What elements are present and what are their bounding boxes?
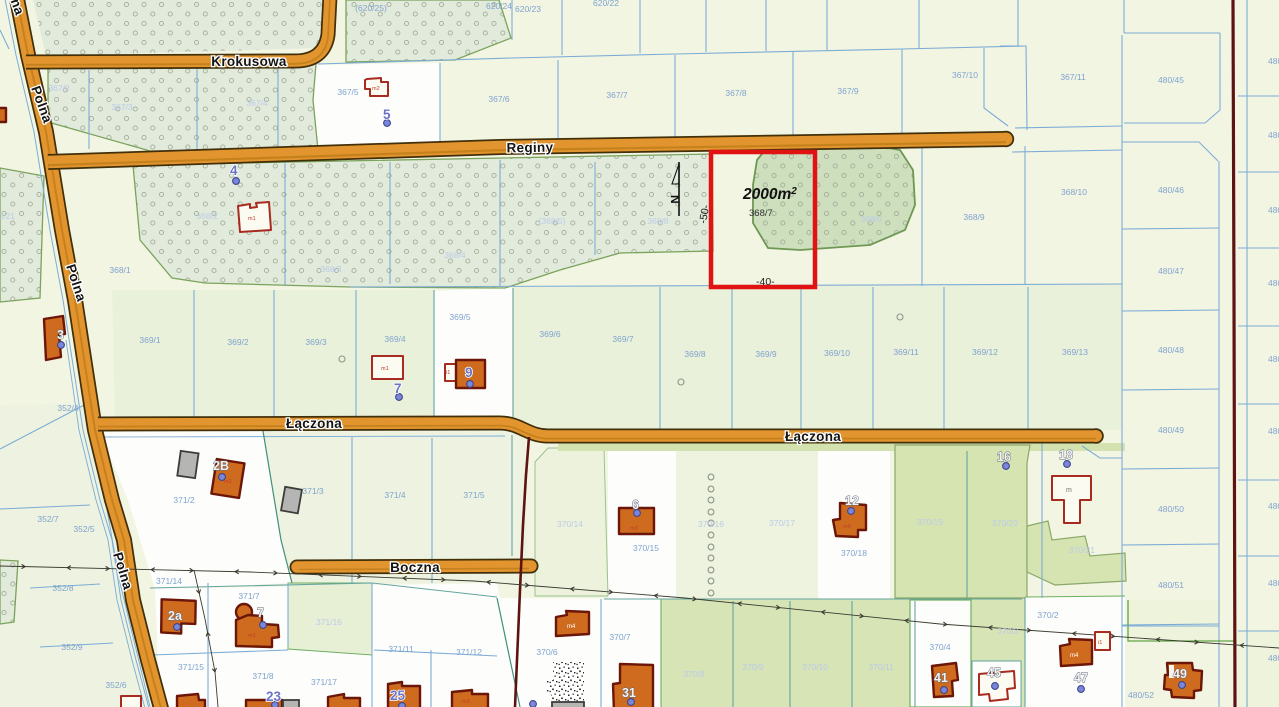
svg-text:Reginy: Reginy — [506, 140, 553, 156]
svg-text:m3: m3 — [462, 699, 470, 705]
svg-text:371/16: 371/16 — [316, 617, 342, 627]
svg-text:367/7: 367/7 — [606, 90, 628, 100]
svg-text:369/13: 369/13 — [1062, 347, 1088, 357]
svg-text:352/5: 352/5 — [73, 524, 95, 534]
svg-text:370/4: 370/4 — [929, 642, 951, 652]
svg-text:480/50: 480/50 — [1158, 504, 1184, 514]
svg-text:Łączona: Łączona — [785, 429, 841, 444]
svg-text:620/23: 620/23 — [515, 4, 541, 14]
svg-text:370/16: 370/16 — [698, 519, 724, 529]
svg-text:6: 6 — [632, 498, 639, 512]
svg-text:371/12: 371/12 — [456, 647, 482, 657]
svg-text:367/11: 367/11 — [1060, 72, 1086, 82]
svg-text:2a: 2a — [168, 609, 183, 623]
svg-text:367/5: 367/5 — [337, 87, 359, 97]
svg-text:371/11: 371/11 — [388, 644, 414, 654]
svg-text:m2: m2 — [224, 479, 232, 485]
svg-text:480/45: 480/45 — [1158, 75, 1184, 85]
svg-text:367/2: 367/2 — [48, 83, 70, 93]
svg-text:370/15: 370/15 — [633, 543, 659, 553]
svg-text:369/11: 369/11 — [893, 347, 919, 357]
svg-text:620/21: 620/21 — [0, 211, 15, 221]
svg-text:370/9: 370/9 — [742, 662, 764, 672]
svg-text:m: m — [1066, 487, 1072, 494]
svg-text:Łączona: Łączona — [286, 416, 342, 431]
svg-text:m4: m4 — [567, 624, 576, 630]
svg-text:369/12: 369/12 — [972, 347, 998, 357]
svg-text:367/6: 367/6 — [488, 94, 510, 104]
svg-text:370/3: 370/3 — [997, 626, 1019, 636]
svg-text:370/19: 370/19 — [917, 517, 943, 527]
svg-text:45: 45 — [987, 666, 1001, 680]
svg-text:370/20: 370/20 — [992, 518, 1018, 528]
svg-text:352/9: 352/9 — [61, 642, 83, 652]
svg-text:480/51: 480/51 — [1158, 580, 1184, 590]
svg-text:369/1: 369/1 — [139, 335, 161, 345]
svg-text:368/1: 368/1 — [109, 265, 131, 275]
svg-text:2B: 2B — [213, 459, 229, 473]
svg-text:371/2: 371/2 — [173, 495, 195, 505]
svg-text:i1: i1 — [446, 370, 450, 376]
svg-text:480/4: 480/4 — [1268, 653, 1279, 663]
svg-text:m1: m1 — [248, 216, 256, 222]
svg-text:370/2: 370/2 — [1037, 610, 1059, 620]
svg-text:480/52: 480/52 — [1128, 690, 1154, 700]
svg-text:369/5: 369/5 — [449, 312, 471, 322]
svg-text:369/6: 369/6 — [539, 329, 561, 339]
svg-text:480/4: 480/4 — [1268, 354, 1279, 364]
svg-text:2000m2: 2000m2 — [742, 186, 797, 203]
svg-text:352/4: 352/4 — [57, 403, 79, 413]
svg-text:369/9: 369/9 — [755, 349, 777, 359]
svg-text:352/8: 352/8 — [52, 583, 74, 593]
svg-text:370/21: 370/21 — [1069, 545, 1095, 555]
svg-text:371/3: 371/3 — [302, 486, 324, 496]
svg-text:m1: m1 — [248, 633, 256, 639]
svg-text:371/15: 371/15 — [178, 662, 204, 672]
svg-text:5: 5 — [383, 107, 391, 122]
svg-text:N: N — [668, 195, 682, 204]
svg-text:23: 23 — [266, 689, 282, 704]
svg-text:m1: m1 — [381, 366, 389, 372]
svg-text:370/8: 370/8 — [683, 669, 705, 679]
svg-text:369/7: 369/7 — [612, 334, 634, 344]
svg-text:369/10: 369/10 — [824, 348, 850, 358]
svg-text:49: 49 — [1173, 667, 1187, 681]
svg-text:369/8: 369/8 — [684, 349, 706, 359]
svg-text:368/7: 368/7 — [749, 208, 773, 219]
svg-text:9: 9 — [465, 365, 473, 380]
svg-text:47: 47 — [1074, 671, 1088, 685]
svg-text:368/6: 368/6 — [860, 214, 882, 224]
svg-text:371/4: 371/4 — [384, 490, 406, 500]
svg-text:371/14: 371/14 — [156, 576, 182, 586]
svg-text:367/3: 367/3 — [111, 102, 133, 112]
svg-text:m3: m3 — [630, 526, 638, 532]
svg-text:i1: i1 — [1098, 640, 1102, 646]
svg-text:3: 3 — [57, 328, 64, 342]
svg-text:368/10: 368/10 — [1061, 187, 1087, 197]
svg-text:371/7: 371/7 — [238, 591, 260, 601]
svg-text:480/4: 480/4 — [1268, 426, 1279, 436]
svg-text:7: 7 — [257, 606, 264, 620]
svg-text:12: 12 — [845, 494, 859, 508]
svg-text:480/46: 480/46 — [1158, 185, 1184, 195]
svg-text:25: 25 — [390, 688, 406, 703]
svg-text:370/11: 370/11 — [868, 662, 894, 672]
svg-text:m4: m4 — [1070, 653, 1079, 659]
svg-text:620/22: 620/22 — [593, 0, 619, 8]
svg-text:41: 41 — [934, 671, 948, 685]
svg-text:352/7: 352/7 — [37, 514, 59, 524]
svg-text:368/8: 368/8 — [647, 216, 669, 226]
svg-text:368/9: 368/9 — [963, 212, 985, 222]
svg-text:16: 16 — [997, 450, 1011, 464]
svg-text:4: 4 — [230, 163, 238, 178]
svg-text:480/4: 480/4 — [1268, 578, 1279, 588]
svg-text:480/4: 480/4 — [1268, 278, 1279, 288]
svg-text:480/4: 480/4 — [1268, 205, 1279, 215]
svg-text:368/3: 368/3 — [320, 264, 342, 274]
svg-text:370/18: 370/18 — [841, 548, 867, 558]
svg-text:371/8: 371/8 — [252, 671, 274, 681]
svg-text:370/10: 370/10 — [802, 662, 828, 672]
svg-text:369/2: 369/2 — [227, 337, 249, 347]
svg-text:371/17: 371/17 — [311, 677, 337, 687]
svg-text:368/2: 368/2 — [196, 211, 218, 221]
svg-text:480/4: 480/4 — [1268, 130, 1279, 140]
svg-text:7: 7 — [394, 381, 402, 396]
svg-text:18: 18 — [1059, 448, 1073, 462]
svg-text:480/49: 480/49 — [1158, 425, 1184, 435]
svg-text:620/24: 620/24 — [486, 1, 512, 11]
svg-text:369/4: 369/4 — [384, 334, 406, 344]
svg-text:-40-: -40- — [756, 276, 775, 288]
svg-text:m5: m5 — [843, 524, 851, 530]
svg-text:370/17: 370/17 — [769, 518, 795, 528]
svg-text:370/14: 370/14 — [557, 519, 583, 529]
svg-text:(368/5): (368/5) — [539, 216, 566, 226]
svg-text:m2: m2 — [372, 86, 380, 92]
svg-text:370/7: 370/7 — [609, 632, 631, 642]
svg-text:Boczna: Boczna — [390, 560, 440, 575]
svg-text:367/8: 367/8 — [725, 88, 747, 98]
svg-text:367/4: 367/4 — [246, 98, 268, 108]
svg-text:352/6: 352/6 — [105, 680, 127, 690]
svg-text:369/3: 369/3 — [305, 337, 327, 347]
svg-text:480/4: 480/4 — [1268, 56, 1279, 66]
svg-text:Krokusowa: Krokusowa — [211, 54, 287, 69]
svg-text:371/5: 371/5 — [463, 490, 485, 500]
svg-text:480/47: 480/47 — [1158, 266, 1184, 276]
svg-text:367/10: 367/10 — [952, 70, 978, 80]
svg-text:370/6: 370/6 — [536, 647, 558, 657]
svg-text:368/4: 368/4 — [444, 250, 466, 260]
svg-text:(620/25): (620/25) — [355, 3, 387, 13]
svg-text:480/4: 480/4 — [1268, 501, 1279, 511]
svg-text:367/9: 367/9 — [837, 86, 859, 96]
svg-text:480/48: 480/48 — [1158, 345, 1184, 355]
svg-text:31: 31 — [622, 686, 636, 700]
